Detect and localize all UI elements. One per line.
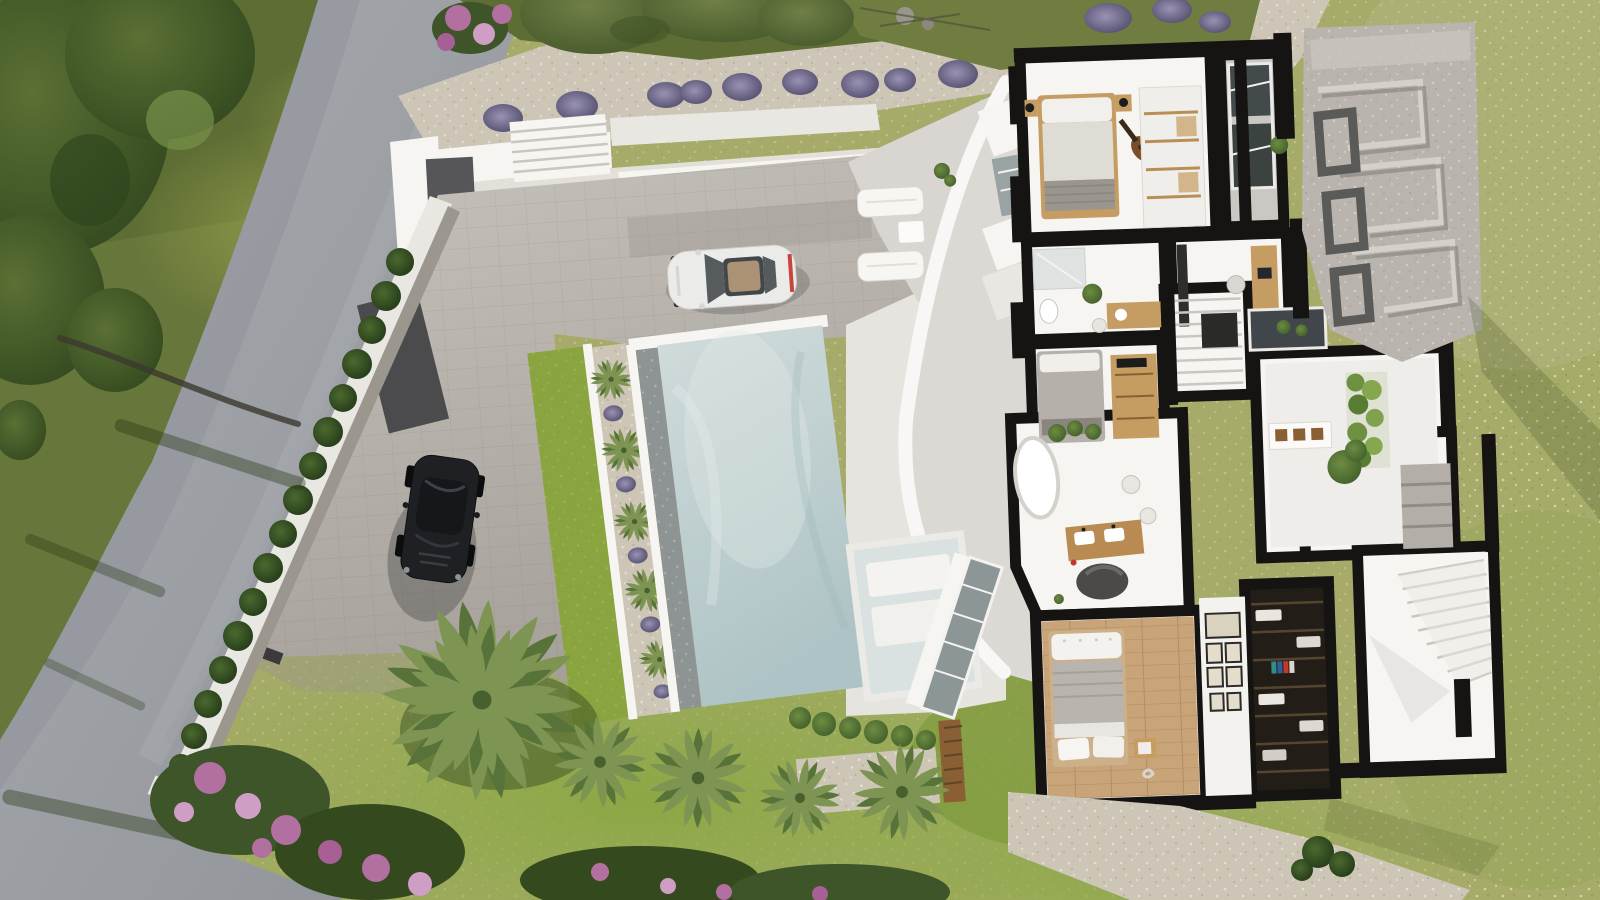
bed-3 xyxy=(1048,629,1129,768)
sun-lounger xyxy=(857,250,924,281)
folded-clothes xyxy=(1296,636,1320,648)
sun-lounger xyxy=(857,186,924,217)
toilet xyxy=(1039,299,1058,324)
folded-clothes xyxy=(1258,693,1284,705)
folded-clothes xyxy=(1299,720,1323,732)
stool xyxy=(1092,318,1106,332)
garden-stair xyxy=(509,114,610,182)
aerial-render-canvas xyxy=(0,0,1600,900)
side-table xyxy=(898,220,925,243)
bedroom-3-interior xyxy=(1042,616,1200,799)
wardrobe xyxy=(1139,86,1206,228)
folded-clothes xyxy=(1255,609,1281,621)
gallery-wall xyxy=(1199,597,1252,798)
scene-svg xyxy=(0,0,1600,900)
laptop xyxy=(1257,267,1271,278)
desk-chair xyxy=(1227,275,1246,294)
tv xyxy=(1117,358,1147,368)
folded-clothes xyxy=(1262,749,1286,761)
patio-stone-steps xyxy=(1400,463,1453,549)
vanity-desk xyxy=(1107,301,1162,329)
stool xyxy=(1140,508,1157,525)
stool xyxy=(1122,475,1141,494)
stairwell-void xyxy=(1201,313,1238,348)
